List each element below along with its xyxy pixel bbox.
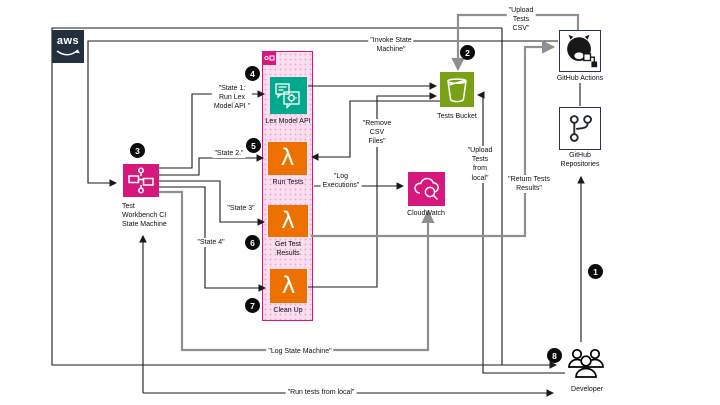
label-remove-csv-files: "Remove CSV Files": [361, 119, 394, 147]
label-log-executions: "Log Executions": [321, 172, 362, 190]
github-repositories-label: GitHub Repositories: [561, 151, 600, 169]
run-tests-lambda-icon: λ: [268, 142, 307, 175]
label-state-3: "State 3": [225, 204, 256, 213]
label-state-2: "State 2.": [212, 149, 245, 158]
label-state-4: "State 4": [195, 238, 226, 247]
step-badge-3: 3: [130, 143, 145, 158]
github-repositories-icon: [559, 107, 601, 150]
step-functions-icon: [123, 164, 159, 197]
cloudwatch-label: CloudWatch: [407, 209, 445, 218]
label-state-1: "State 1: Run Lex Model API ": [212, 84, 252, 112]
step-functions-group-icon: [262, 51, 276, 65]
github-actions-label: GitHub Actions: [557, 74, 603, 83]
cloudwatch-icon: [408, 172, 445, 206]
step-badge-4: 4: [245, 66, 260, 81]
get-test-results-lambda-icon: λ: [268, 205, 308, 237]
aws-logo: aws: [52, 30, 84, 63]
label-upload-tests-from-local: "Upload Tests from local": [466, 146, 495, 183]
state-machine-label: Test Workbench CI State Machine: [122, 202, 167, 229]
aws-logo-text: aws: [52, 30, 84, 47]
diagram-canvas: aws Test Workbench CI State Machine 3: [0, 0, 720, 405]
lex-model-api-icon: [270, 77, 307, 114]
developer-label: Developer: [571, 385, 603, 394]
run-tests-label: Run Tests: [273, 178, 304, 187]
connector-lines: [0, 0, 720, 405]
step-badge-2: 2: [460, 45, 475, 60]
lex-model-api-label: Lex Model API: [265, 117, 310, 126]
label-invoke-state-machine: "Invoke State Machine": [368, 36, 413, 54]
label-run-tests-from-local: "Run tests from local": [286, 388, 357, 397]
step-badge-5: 5: [246, 138, 261, 153]
developer-users-icon: [565, 345, 607, 383]
clean-up-lambda-icon: λ: [270, 269, 307, 303]
step-badge-1: 1: [588, 264, 603, 279]
clean-up-label: Clean Up: [273, 306, 302, 315]
github-actions-icon: [559, 30, 601, 72]
label-log-state-machine: "Log State Machine": [266, 347, 333, 356]
step-badge-6: 6: [245, 235, 260, 250]
label-return-tests-results: "Return Tests Results": [506, 175, 552, 193]
aws-smile-icon: [52, 48, 84, 60]
edge-upload-tests-from-local: [478, 95, 565, 373]
tests-bucket-label: Tests Bucket: [437, 112, 477, 121]
edge-state-2: [158, 158, 263, 175]
label-upload-tests-csv: "Upload Tests CSV": [507, 6, 536, 34]
s3-bucket-icon: [440, 72, 474, 107]
edge-return-tests-results: [311, 47, 553, 236]
get-test-results-label: Get Test Results: [275, 240, 301, 258]
step-badge-8: 8: [547, 348, 562, 363]
step-badge-7: 7: [245, 298, 260, 313]
